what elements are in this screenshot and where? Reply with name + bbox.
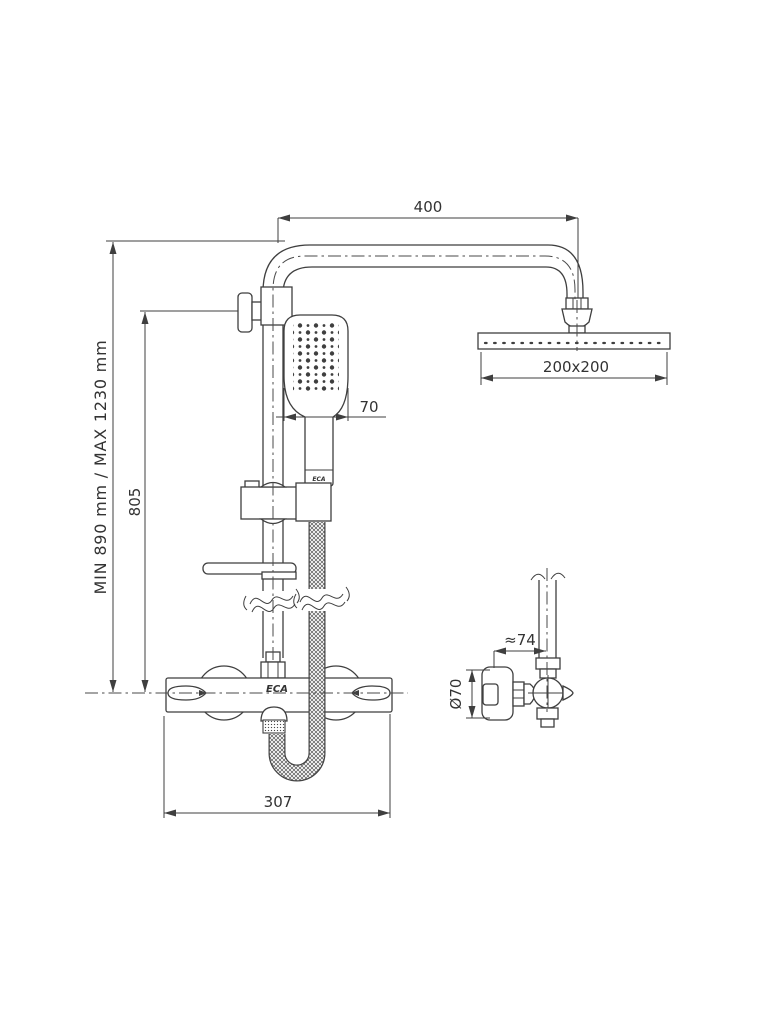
dim-mixer-width-label: 307 <box>264 793 293 811</box>
side-spout-tip <box>563 686 573 700</box>
break-symbol-rail <box>244 589 300 612</box>
overhead-shower <box>478 298 670 349</box>
soap-dish-clamp <box>262 572 296 579</box>
shower-head-plate <box>478 333 670 349</box>
dim-rail-height-label: 805 <box>126 488 144 517</box>
slider-body <box>241 487 300 519</box>
dim-head-size-label: 200x200 <box>543 358 609 376</box>
break-symbol-side-pipe <box>531 574 545 580</box>
brand-logo-handle: ECA <box>312 476 326 483</box>
side-connector-nut <box>513 682 524 706</box>
slider-bracket <box>241 481 331 524</box>
shower-arm <box>263 245 583 300</box>
wall-bracket <box>238 287 292 332</box>
dimension-rail-height: 805 <box>126 311 238 692</box>
side-handle-lever <box>483 684 498 705</box>
side-pipe-nut <box>536 658 560 669</box>
hose-nut <box>263 720 285 733</box>
break-symbol-hose <box>294 587 350 610</box>
dim-wall-distance-label: ≈74 <box>504 631 536 649</box>
dimension-arm-reach: 400 <box>278 198 578 300</box>
rail-clamp-bottom <box>261 519 285 524</box>
dim-arm-reach-label: 400 <box>414 198 443 216</box>
hand-shower: ECA <box>284 315 348 486</box>
riser-nut <box>261 662 285 678</box>
outlet-dome <box>261 707 287 721</box>
dim-hand-shower-width-label: 70 <box>359 398 378 416</box>
technical-drawing-page: 400 200x200 <box>0 0 768 1024</box>
handset-holder <box>296 483 331 521</box>
shower-column-technical-drawing: 400 200x200 <box>0 0 768 1024</box>
dimension-head-size: 200x200 <box>481 352 667 385</box>
soap-dish <box>203 563 296 579</box>
dim-handle-diameter-label: Ø70 <box>447 679 465 710</box>
side-view <box>482 573 573 727</box>
wall-bracket-flange <box>238 293 252 332</box>
dim-height-range-label: MIN 890 mm / MAX 1230 mm <box>91 340 110 595</box>
hand-shower-spray-face <box>293 322 339 392</box>
